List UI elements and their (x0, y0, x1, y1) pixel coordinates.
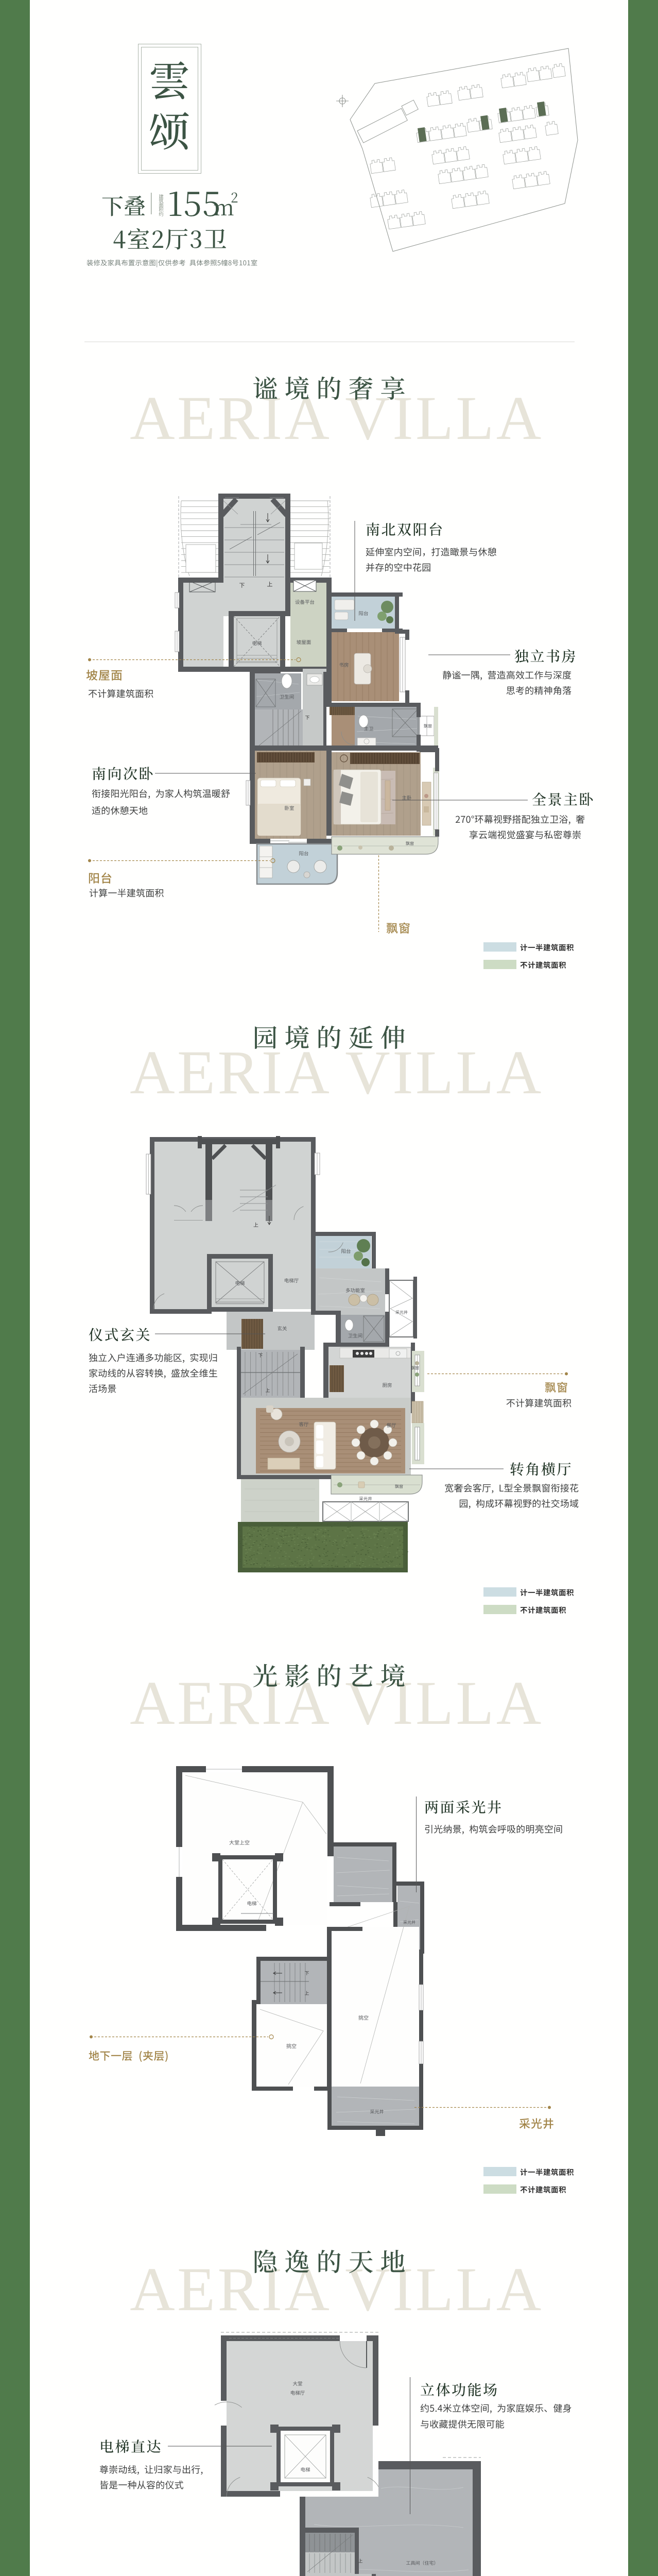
svg-text:AERIA VILLA: AERIA VILLA (130, 384, 543, 453)
svg-text:AERIA VILLA: AERIA VILLA (130, 2255, 543, 2324)
svg-text:AERIA VILLA: AERIA VILLA (130, 1669, 543, 1738)
svg-text:AERIA VILLA: AERIA VILLA (130, 1038, 543, 1107)
